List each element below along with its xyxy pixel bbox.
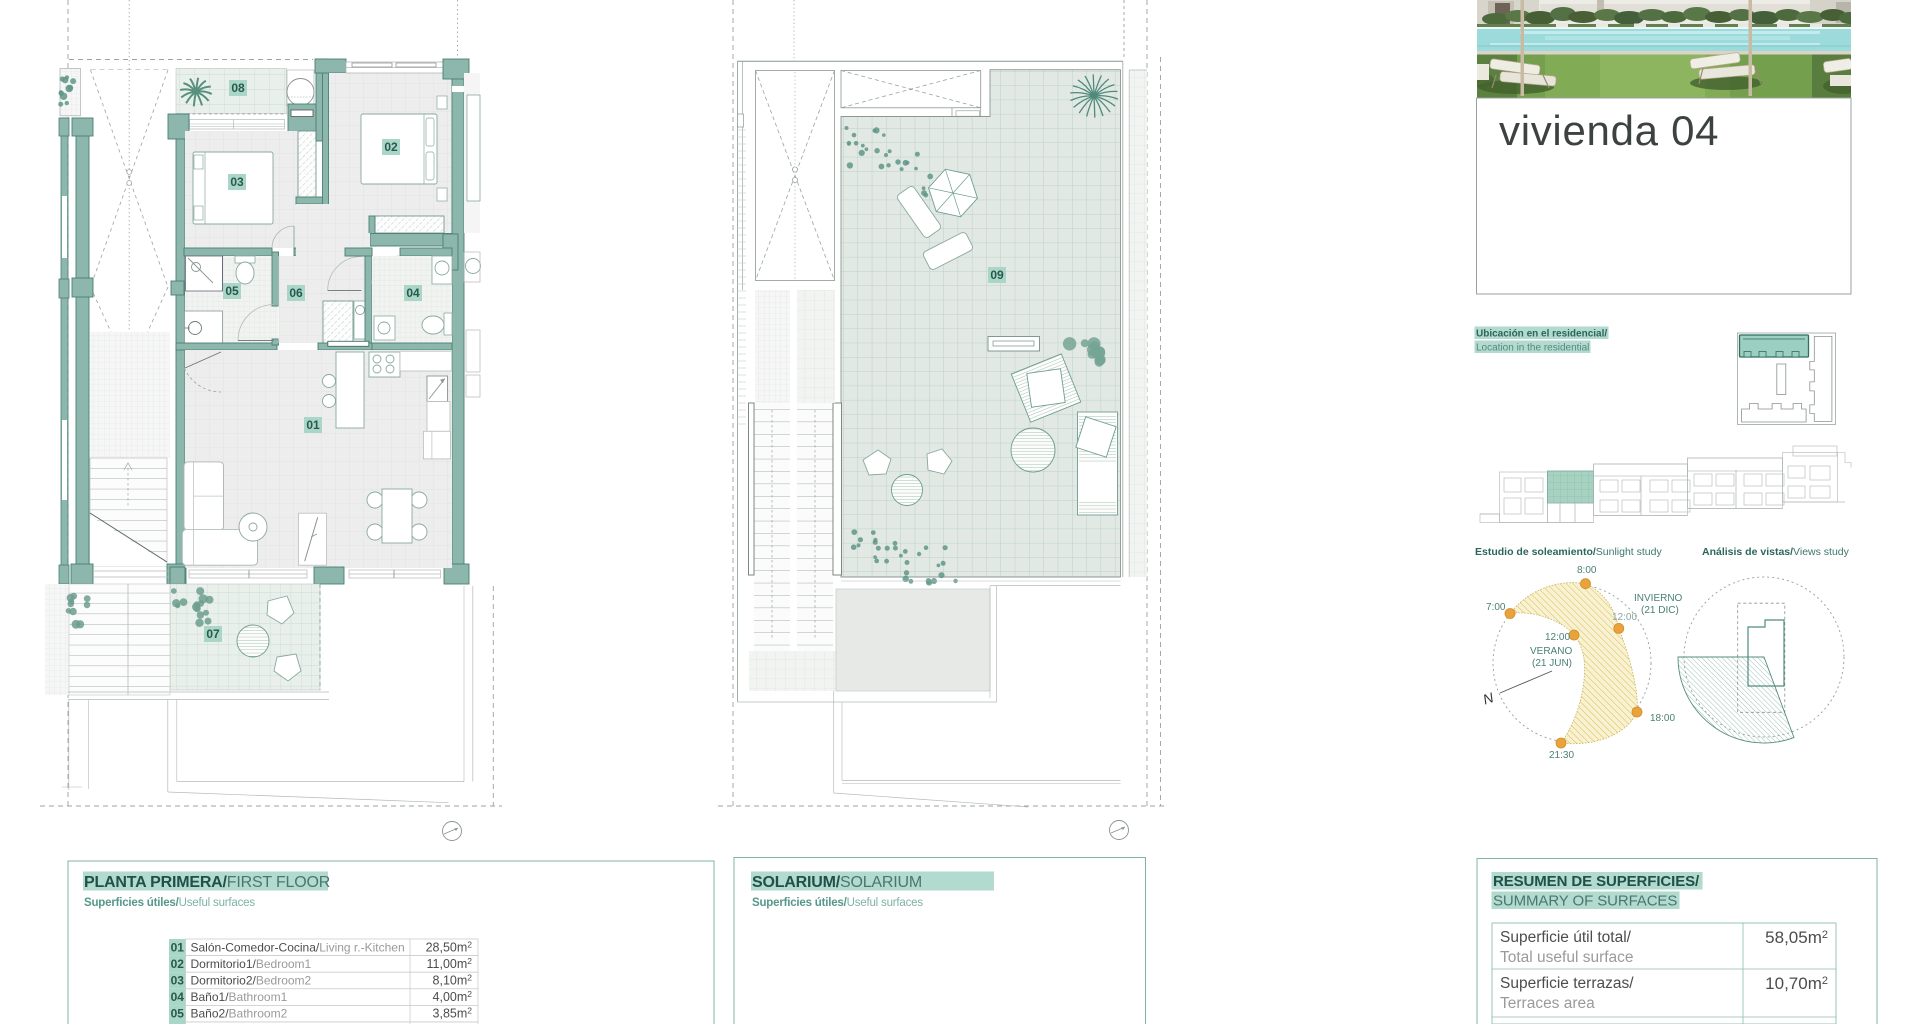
svg-text:SOLARIUM/SOLARIUM: SOLARIUM/SOLARIUM: [752, 874, 922, 891]
svg-text:12:00: 12:00: [1612, 612, 1637, 623]
svg-text:4,00m2: 4,00m2: [433, 989, 473, 1004]
svg-text:05: 05: [171, 1007, 185, 1021]
svg-text:28,50m2: 28,50m2: [426, 939, 473, 954]
svg-text:vivienda 04: vivienda 04: [1499, 107, 1719, 154]
svg-text:Superficie útil total/: Superficie útil total/: [1500, 929, 1632, 946]
svg-text:Estudio de soleamiento/Sunligh: Estudio de soleamiento/Sunlight study: [1475, 546, 1662, 558]
svg-text:RESUMEN DE SUPERFICIES/: RESUMEN DE SUPERFICIES/: [1493, 873, 1700, 890]
svg-text:3,85m2: 3,85m2: [433, 1006, 473, 1021]
svg-text:7:00: 7:00: [1486, 602, 1506, 613]
svg-text:04: 04: [171, 990, 185, 1004]
svg-text:Baño1/Bathroom1: Baño1/Bathroom1: [191, 990, 288, 1004]
svg-text:Superficie terrazas/: Superficie terrazas/: [1500, 975, 1634, 992]
svg-text:08: 08: [231, 81, 245, 95]
svg-text:Análisis de vistas/Views study: Análisis de vistas/Views study: [1702, 546, 1850, 558]
svg-text:Superficies útiles/Useful surf: Superficies útiles/Useful surfaces: [752, 897, 923, 909]
svg-text:11,00m2: 11,00m2: [427, 956, 473, 971]
svg-text:Superficies útiles/Useful surf: Superficies útiles/Useful surfaces: [84, 897, 255, 909]
svg-text:8:00: 8:00: [1577, 565, 1597, 576]
svg-text:21:30: 21:30: [1549, 750, 1574, 761]
svg-text:VERANO: VERANO: [1530, 646, 1572, 657]
svg-text:Ubicación en el residencial/: Ubicación en el residencial/: [1476, 329, 1607, 340]
svg-text:(21 JUN): (21 JUN): [1532, 658, 1572, 669]
svg-text:06: 06: [289, 286, 303, 300]
svg-text:SUMMARY OF SURFACES: SUMMARY OF SURFACES: [1493, 893, 1677, 910]
svg-text:Location in the residential: Location in the residential: [1476, 343, 1589, 354]
svg-text:Total useful surface: Total useful surface: [1500, 949, 1634, 966]
svg-text:01: 01: [306, 418, 320, 432]
svg-text:12:00: 12:00: [1545, 632, 1570, 643]
svg-text:(21 DIC): (21 DIC): [1641, 605, 1679, 616]
svg-text:58,05m2: 58,05m2: [1765, 928, 1828, 947]
svg-text:8,10m2: 8,10m2: [433, 973, 473, 988]
svg-text:18:00: 18:00: [1650, 713, 1675, 724]
svg-text:10,70m2: 10,70m2: [1765, 974, 1828, 993]
svg-text:Salón-Comedor-Cocina/Living r.: Salón-Comedor-Cocina/Living r.-Kitchen: [191, 940, 405, 954]
svg-text:09: 09: [990, 268, 1004, 282]
svg-text:Terraces area: Terraces area: [1500, 995, 1595, 1012]
svg-text:INVIERNO: INVIERNO: [1634, 593, 1683, 604]
svg-text:03: 03: [171, 974, 185, 988]
svg-text:Baño2/Bathroom2: Baño2/Bathroom2: [191, 1007, 288, 1021]
svg-text:04: 04: [406, 286, 420, 300]
svg-text:Dormitorio2/Bedroom2: Dormitorio2/Bedroom2: [191, 974, 312, 988]
svg-text:07: 07: [206, 627, 220, 641]
svg-text:03: 03: [230, 175, 244, 189]
svg-text:01: 01: [171, 940, 185, 954]
svg-text:PLANTA PRIMERA/FIRST FLOOR: PLANTA PRIMERA/FIRST FLOOR: [84, 874, 330, 891]
svg-text:02: 02: [171, 957, 185, 971]
svg-text:02: 02: [384, 140, 398, 154]
svg-text:Dormitorio1/Bedroom1: Dormitorio1/Bedroom1: [191, 957, 312, 971]
svg-text:05: 05: [225, 284, 239, 298]
